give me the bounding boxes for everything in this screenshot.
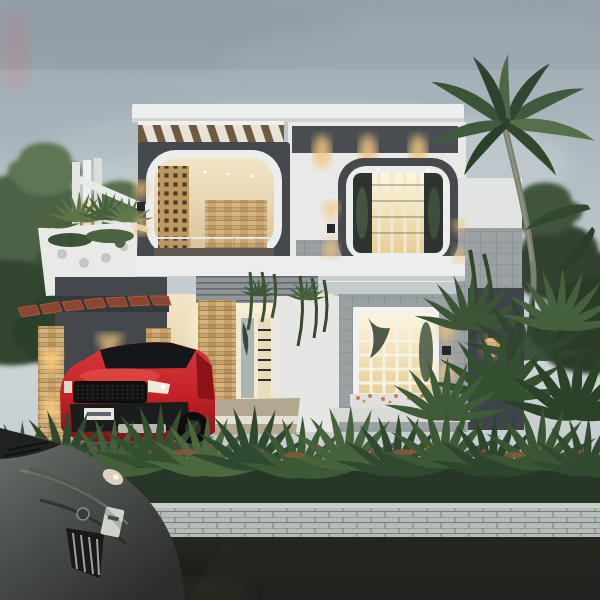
stair-window [236,313,276,403]
suv-grille [74,382,146,402]
plant-reflection [356,187,368,239]
plant-reflection [428,187,440,239]
stone-feature-wall [205,200,267,250]
upper-window [338,158,458,268]
plate-text-illegible [87,412,111,416]
sky-grade [0,0,600,70]
sedan-badge [77,508,89,520]
render-canvas [0,0,600,600]
ground-window [353,307,439,399]
boundary-wall [100,503,600,541]
suv-headlight-left [64,381,72,393]
architectural-render [0,0,600,600]
right-wing-wall [458,178,522,230]
balcony-frame [138,142,290,264]
